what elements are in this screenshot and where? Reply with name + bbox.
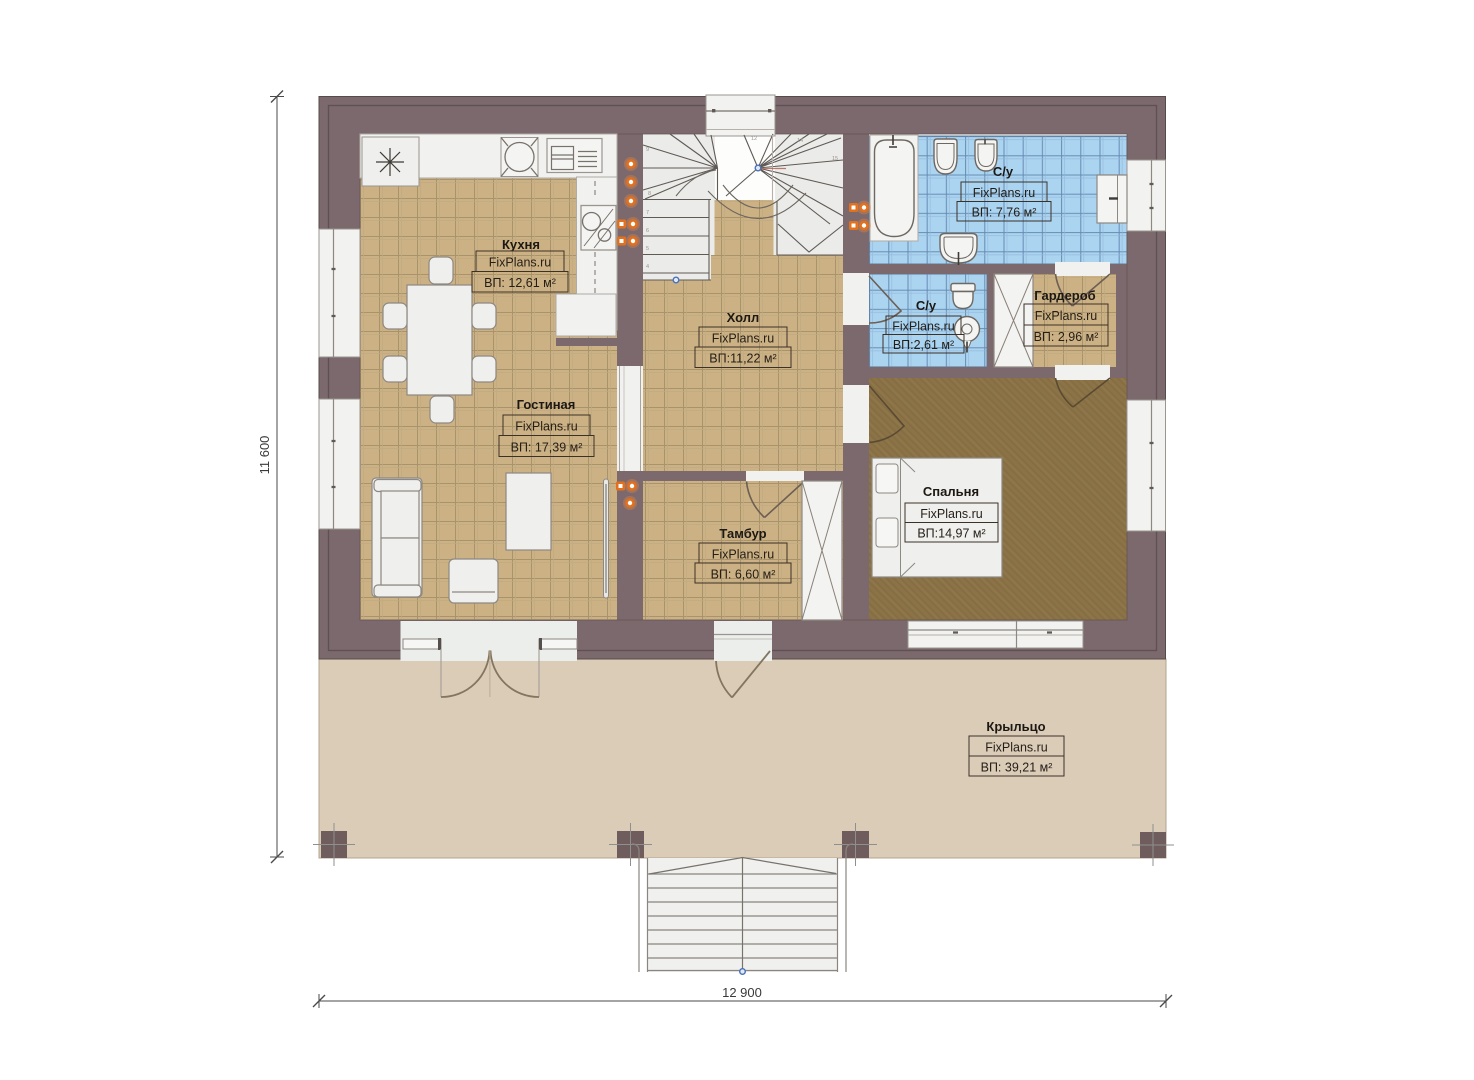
svg-text:Гостиная: Гостиная <box>517 397 576 412</box>
svg-text:Тамбур: Тамбур <box>719 526 766 541</box>
svg-text:14: 14 <box>797 138 803 144</box>
svg-text:FixPlans.ru: FixPlans.ru <box>489 256 552 270</box>
svg-text:Кухня: Кухня <box>502 237 540 252</box>
svg-text:6: 6 <box>646 228 649 234</box>
svg-text:ВП: 6,60 м²: ВП: 6,60 м² <box>711 568 776 582</box>
svg-text:FixPlans.ru: FixPlans.ru <box>892 320 955 334</box>
svg-text:ВП: 39,21 м²: ВП: 39,21 м² <box>981 761 1053 775</box>
svg-text:7: 7 <box>646 210 649 216</box>
svg-text:11 600: 11 600 <box>257 436 272 475</box>
svg-text:ВП:14,97 м²: ВП:14,97 м² <box>917 527 985 541</box>
svg-text:15: 15 <box>832 156 838 162</box>
svg-text:ВП: 7,76 м²: ВП: 7,76 м² <box>972 206 1037 220</box>
svg-text:8: 8 <box>648 191 651 197</box>
svg-text:5: 5 <box>646 246 649 252</box>
svg-text:С/у: С/у <box>993 164 1014 179</box>
svg-text:FixPlans.ru: FixPlans.ru <box>515 420 578 434</box>
svg-text:12 900: 12 900 <box>722 985 762 1000</box>
svg-text:FixPlans.ru: FixPlans.ru <box>712 332 775 346</box>
svg-text:ВП: 2,96 м²: ВП: 2,96 м² <box>1034 330 1099 344</box>
svg-text:Крыльцо: Крыльцо <box>986 719 1045 734</box>
svg-text:FixPlans.ru: FixPlans.ru <box>985 741 1048 755</box>
svg-text:Гардероб: Гардероб <box>1034 288 1095 303</box>
svg-text:ВП:11,22 м²: ВП:11,22 м² <box>709 352 776 366</box>
svg-text:12: 12 <box>751 136 757 142</box>
svg-text:Спальня: Спальня <box>923 484 979 499</box>
svg-text:FixPlans.ru: FixPlans.ru <box>1035 309 1098 323</box>
svg-text:FixPlans.ru: FixPlans.ru <box>920 507 983 521</box>
svg-text:С/у: С/у <box>916 298 937 313</box>
svg-text:FixPlans.ru: FixPlans.ru <box>973 186 1036 200</box>
svg-text:FixPlans.ru: FixPlans.ru <box>712 548 775 562</box>
svg-text:9: 9 <box>646 147 649 153</box>
svg-text:4: 4 <box>646 264 649 270</box>
svg-text:ВП:2,61 м²: ВП:2,61 м² <box>893 338 954 352</box>
svg-text:ВП: 12,61 м²: ВП: 12,61 м² <box>484 276 556 290</box>
svg-text:Холл: Холл <box>727 310 760 325</box>
svg-text:ВП: 17,39 м²: ВП: 17,39 м² <box>511 441 583 455</box>
